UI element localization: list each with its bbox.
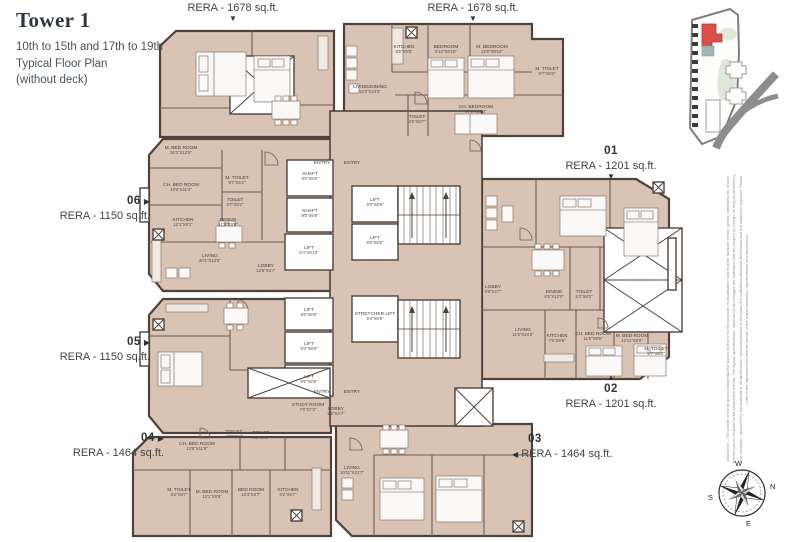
bed bbox=[428, 58, 464, 98]
compass-north-label: N bbox=[770, 482, 775, 491]
room-label: SHAFT9'0"X6'6" bbox=[301, 208, 319, 218]
rera-area-label: RERA - 1464 sq.ft. bbox=[6, 446, 164, 460]
unit-number: 04 bbox=[141, 432, 155, 444]
unit-number: 02 bbox=[538, 382, 684, 397]
room-label: LOBBY12'5"X6'7" bbox=[256, 263, 276, 273]
compass-south-label: S bbox=[708, 493, 713, 502]
room-label: M. TOILET8'7"X5'2" bbox=[225, 175, 248, 185]
callout-unit-05: 05 ▶ RERA - 1150 sq.ft. bbox=[0, 335, 150, 364]
rera-area-row: ◀ RERA - 1464 sq.ft. bbox=[512, 447, 687, 461]
subtitle-line: (without deck) bbox=[16, 72, 163, 89]
compass-icon: W N S E bbox=[705, 456, 779, 530]
kitchen-counter bbox=[312, 468, 321, 510]
arrow-up-icon: ▲ bbox=[538, 374, 684, 382]
bed bbox=[624, 208, 658, 256]
room-label: BEDROOM9'10"X9'10" bbox=[434, 44, 459, 54]
room-label: KITCHEN8'2"X9'7" bbox=[277, 487, 299, 497]
kitchen-counter bbox=[166, 304, 208, 312]
room-label: TOILET5'3"X8'0" bbox=[575, 289, 593, 299]
room-label: KITCHEN12'1"X8'1" bbox=[172, 217, 194, 227]
floor-plan-page: M. BED ROOM16'3"X12'5"CH. BED ROOM12'0"X… bbox=[0, 0, 785, 542]
subtitle-line: Typical Floor Plan bbox=[16, 56, 163, 73]
bed bbox=[254, 56, 290, 102]
bed bbox=[468, 56, 514, 98]
room-label: TOILET8'7"X5'2" bbox=[226, 197, 244, 207]
disclaimer-text: Disclaimer - The picture of the proposed… bbox=[725, 173, 751, 465]
room-label: DINING8'5"X12'0" bbox=[544, 289, 564, 299]
staircase bbox=[398, 186, 460, 244]
room-label: BED ROOM10'3"X9'7" bbox=[238, 487, 264, 497]
arrow-right-icon: ▶ bbox=[144, 338, 150, 347]
callout-rera-top-right: RERA - 1678 sq.ft. ▼ bbox=[400, 1, 546, 23]
ledge bbox=[668, 238, 676, 290]
dining-table bbox=[380, 425, 408, 454]
bed bbox=[380, 478, 424, 520]
duct-void bbox=[455, 388, 493, 426]
bed bbox=[158, 352, 202, 386]
arrow-down-icon: ▼ bbox=[538, 173, 684, 181]
room-label: TOILET9'8"X5'4" bbox=[225, 429, 243, 439]
compass-east-label: E bbox=[746, 519, 751, 528]
dining-table bbox=[532, 244, 564, 276]
room-label: TOILET4'9"X8'0" bbox=[252, 430, 270, 440]
bed bbox=[436, 476, 482, 522]
arrow-down-icon: ▼ bbox=[160, 15, 306, 23]
bed bbox=[196, 52, 246, 96]
room-label: M. TOILET9'7"X5'0" bbox=[535, 66, 558, 76]
callout-unit-01: 01 RERA - 1201 sq.ft. ▼ bbox=[538, 144, 684, 181]
room-label: KITCHEN8'5"X9'8" bbox=[393, 44, 415, 54]
bed bbox=[455, 114, 497, 134]
room-label: M. TOILET5'2"X8'7" bbox=[167, 487, 190, 497]
room-label: ENTRY bbox=[314, 389, 331, 395]
room-label: M. TOILET8'7"X5'0" bbox=[644, 346, 667, 356]
rera-area-label: RERA - 1678 sq.ft. bbox=[400, 1, 546, 15]
rera-area-label: RERA - 1464 sq.ft. bbox=[521, 448, 612, 460]
callout-unit-04: 04 ▶ RERA - 1464 sq.ft. bbox=[6, 431, 164, 460]
site-key-map bbox=[678, 4, 783, 159]
room-label: DINING11'5"X9'8" bbox=[218, 217, 238, 227]
callout-unit-02: ▲ 02 RERA - 1201 sq.ft. bbox=[538, 374, 684, 411]
rera-area-label: RERA - 1201 sq.ft. bbox=[538, 397, 684, 411]
room-label: SHAFT9'0"X6'6" bbox=[301, 171, 319, 181]
arrow-right-icon: ▶ bbox=[158, 434, 164, 443]
dining-table bbox=[272, 96, 300, 125]
title-block: Tower 1 10th to 15th and 17th to 19th Ty… bbox=[16, 8, 163, 89]
unit-number-row: 04 ▶ bbox=[6, 431, 164, 446]
room-label: LOBBY9'8"X4'7" bbox=[484, 284, 502, 294]
room-label: ENTRY bbox=[314, 160, 331, 166]
subtitle-line: 10th to 15th and 17th to 19th bbox=[16, 39, 163, 56]
unit-number: 03 bbox=[528, 432, 687, 447]
rera-area-label: RERA - 1150 sq.ft. bbox=[0, 209, 150, 223]
room-label: LOBBY9'8"X4'7" bbox=[327, 406, 345, 416]
bed bbox=[586, 346, 622, 376]
room-label: KITCHEN7'6"X9'8" bbox=[546, 333, 568, 343]
callout-rera-top-left: RERA - 1678 sq.ft. ▼ bbox=[160, 1, 306, 23]
kitchen-counter bbox=[152, 240, 161, 282]
bed bbox=[560, 196, 606, 236]
room-label: TOILET4'9"X8'7" bbox=[408, 114, 426, 124]
staircase bbox=[398, 300, 460, 358]
room-label: ENTRY bbox=[344, 160, 361, 166]
arrow-right-icon: ▶ bbox=[144, 197, 150, 206]
compass-star bbox=[713, 464, 771, 522]
page-subtitle: 10th to 15th and 17th to 19th Typical Fl… bbox=[16, 39, 163, 89]
kitchen-counter bbox=[544, 354, 574, 362]
building-outline bbox=[706, 100, 720, 132]
page-title: Tower 1 bbox=[16, 8, 163, 33]
callout-unit-06: 06 ▶ RERA - 1150 sq.ft. bbox=[0, 194, 150, 223]
rera-area-label: RERA - 1678 sq.ft. bbox=[160, 1, 306, 15]
unit-number-row: 05 ▶ bbox=[0, 335, 150, 350]
arrow-left-icon: ◀ bbox=[512, 450, 518, 459]
room-label: ENTRY bbox=[344, 389, 361, 395]
arrow-down-icon: ▼ bbox=[400, 15, 546, 23]
unit-number: 06 bbox=[127, 195, 141, 207]
rera-area-label: RERA - 1150 sq.ft. bbox=[0, 350, 150, 364]
compass-rose: W N S E bbox=[705, 456, 779, 535]
callout-unit-03: 03 ◀ RERA - 1464 sq.ft. bbox=[512, 432, 687, 461]
kitchen-counter bbox=[318, 36, 328, 70]
building-outline bbox=[702, 46, 714, 56]
unit-number: 01 bbox=[538, 144, 684, 159]
site-key-map-drawing bbox=[678, 4, 783, 154]
unit-number: 05 bbox=[127, 336, 141, 348]
rera-area-label: RERA - 1201 sq.ft. bbox=[538, 159, 684, 173]
unit-number-row: 06 ▶ bbox=[0, 194, 150, 209]
